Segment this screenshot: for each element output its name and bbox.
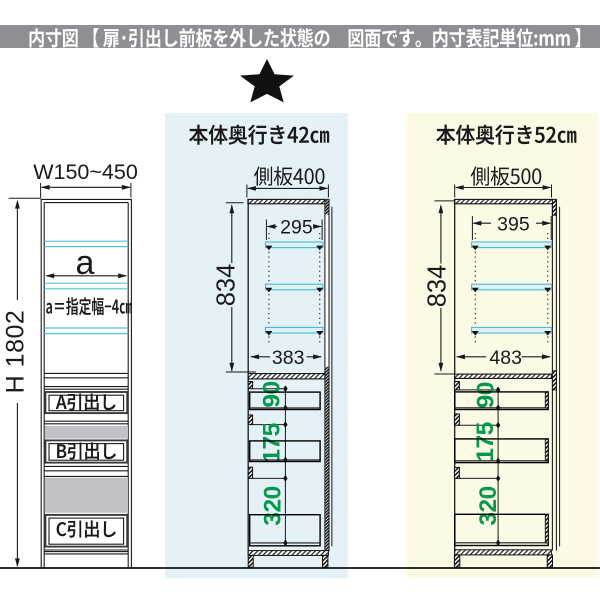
svg-text:W150~450: W150~450 [33,160,138,184]
svg-text:175: 175 [472,422,499,461]
svg-text:834: 834 [213,264,241,307]
svg-text:90: 90 [473,382,500,408]
svg-text:295: 295 [280,217,313,239]
svg-text:395: 395 [497,214,530,236]
svg-text:320: 320 [475,486,502,525]
svg-text:383: 383 [272,347,305,369]
svg-text:834: 834 [424,265,452,308]
svg-text:H 1802: H 1802 [2,310,30,394]
svg-text:175: 175 [259,423,286,462]
svg-text:90: 90 [259,381,286,407]
svg-text:320: 320 [260,486,287,525]
svg-text:483: 483 [489,347,522,369]
